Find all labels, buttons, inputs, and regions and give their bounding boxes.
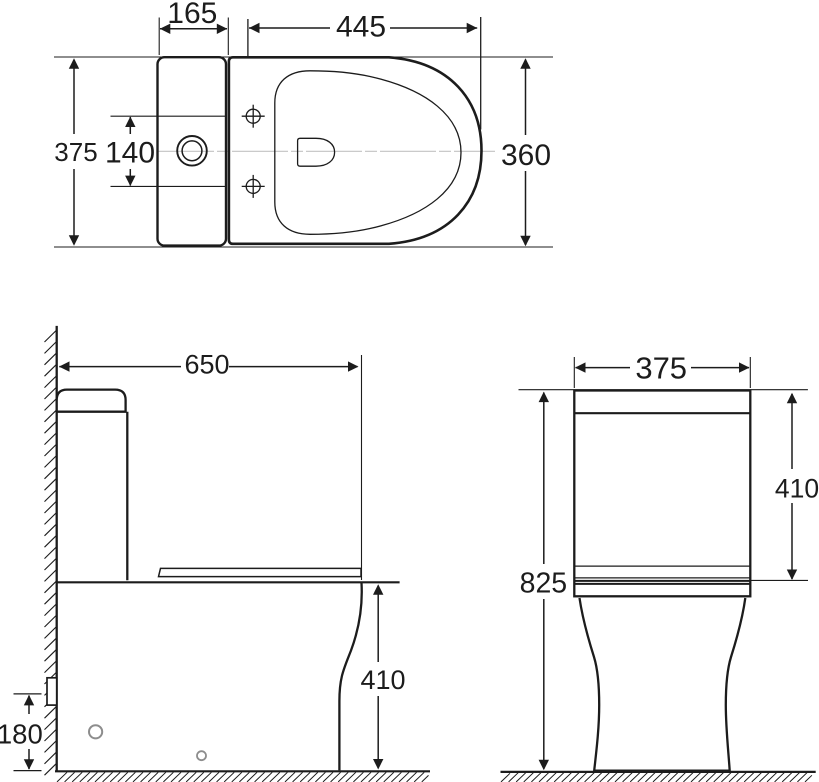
svg-text:650: 650 <box>184 349 229 379</box>
svg-text:410: 410 <box>775 473 819 503</box>
svg-text:445: 445 <box>336 11 386 44</box>
svg-text:140: 140 <box>105 136 155 169</box>
svg-text:360: 360 <box>501 139 551 172</box>
svg-text:375: 375 <box>54 137 97 167</box>
svg-text:410: 410 <box>360 665 405 695</box>
svg-text:375: 375 <box>635 350 687 385</box>
svg-text:180: 180 <box>0 718 43 749</box>
svg-text:825: 825 <box>520 568 568 600</box>
svg-text:165: 165 <box>167 0 217 30</box>
